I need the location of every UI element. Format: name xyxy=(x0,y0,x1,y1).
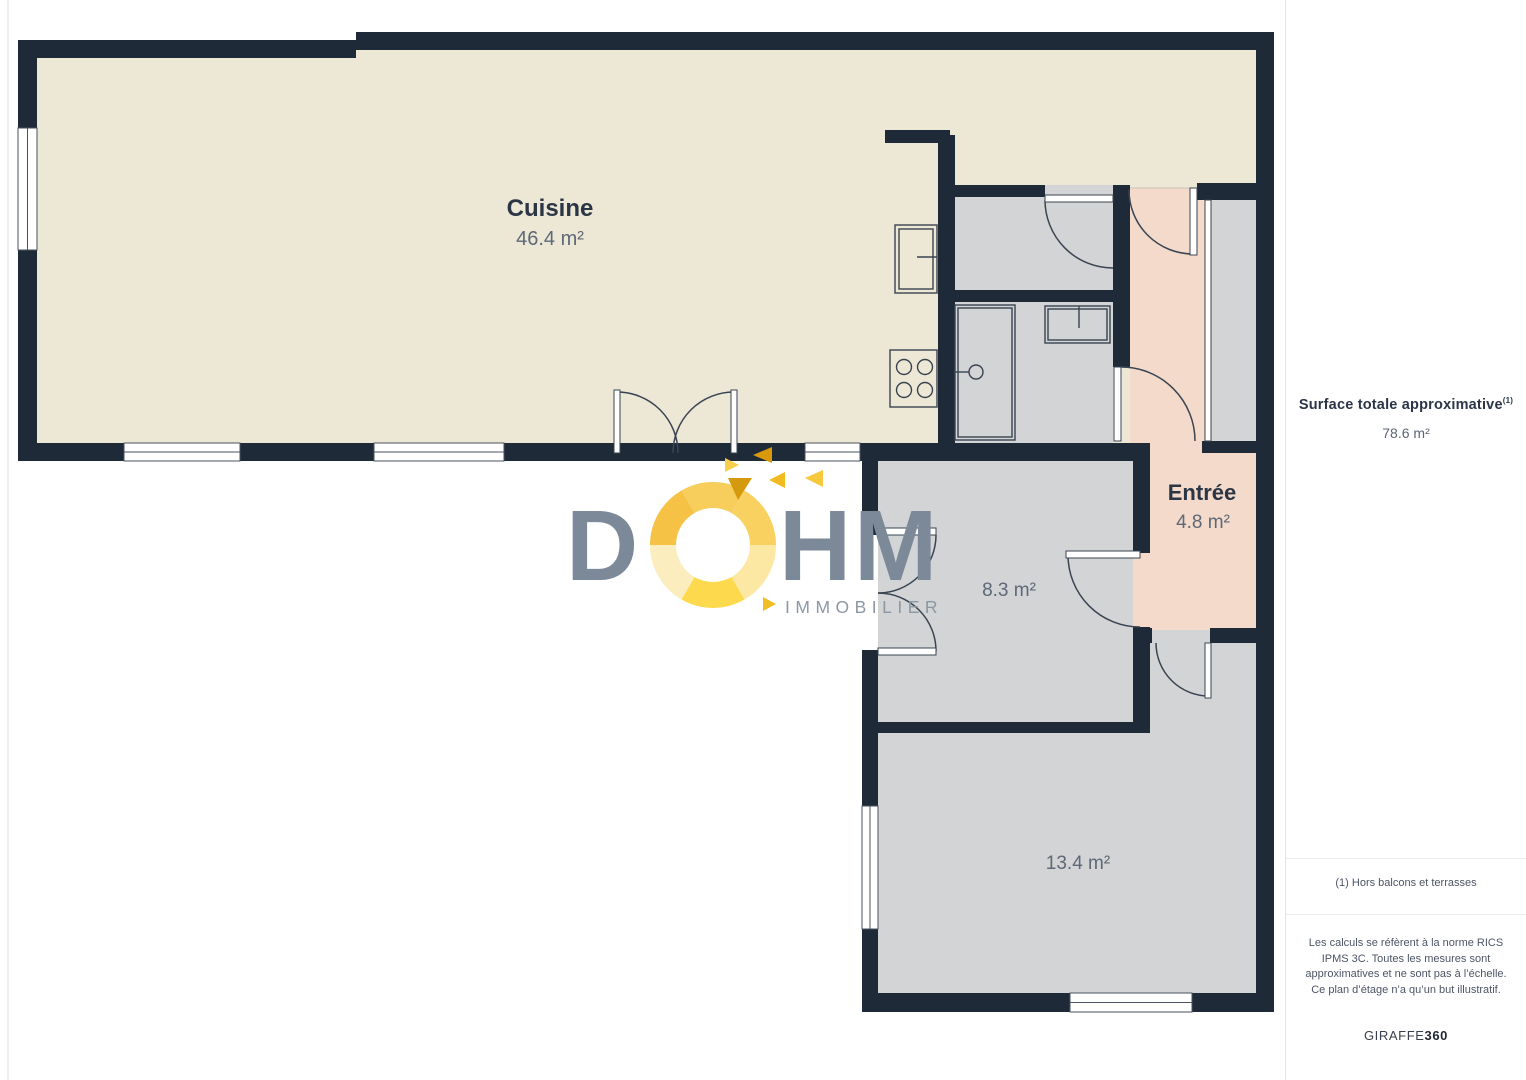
door-leaf xyxy=(1066,551,1140,558)
door-leaf xyxy=(1114,367,1121,441)
door-leaf xyxy=(1045,195,1113,202)
room-area-83: 8.3 m² xyxy=(982,580,1036,601)
sun-ray-icon xyxy=(805,470,823,487)
logo-letter-d: D xyxy=(566,490,638,602)
surface-title: Surface totale approximative(1) xyxy=(1286,396,1526,413)
divider xyxy=(1286,858,1526,859)
wall-top-left xyxy=(18,40,356,58)
giraffe360-brand: GIRAFFE360 xyxy=(1286,1028,1526,1043)
logo-subtitle: IMMOBILIER xyxy=(785,597,943,617)
footnote-marker: (1) xyxy=(1503,396,1513,405)
logo-sub-triangle-icon xyxy=(763,597,776,611)
floor-plan-svg: Cuisine 46.4 m² Entrée 4.8 m² 8.3 m² 13.… xyxy=(0,0,1285,1080)
divider xyxy=(1286,914,1526,915)
room-entree-fill xyxy=(1150,445,1256,630)
door-leaf xyxy=(1205,643,1211,698)
sun-ray-icon xyxy=(769,472,785,488)
room-area-cuisine: 46.4 m² xyxy=(516,228,584,250)
door-leaf xyxy=(878,648,936,655)
wall-entree-bottom xyxy=(1210,628,1256,643)
floor-plan-canvas: Cuisine 46.4 m² Entrée 4.8 m² 8.3 m² 13.… xyxy=(0,0,1285,1080)
wall-kitchen-stub xyxy=(885,130,950,143)
wall-kitchen xyxy=(938,135,955,455)
footnote-text: (1) Hors balcons et terrasses xyxy=(1286,877,1526,889)
door-leaf xyxy=(614,390,620,453)
room-label-entree: Entrée xyxy=(1168,480,1236,505)
room-cuisine-fill xyxy=(37,58,356,443)
logo-sun-ring xyxy=(663,495,763,595)
logo-letter-h: H xyxy=(779,490,851,602)
info-sidebar: Surface totale approximative(1) 78.6 m² … xyxy=(1285,0,1526,1080)
room-closet-fill xyxy=(1210,200,1256,441)
surface-total-value: 78.6 m² xyxy=(1286,425,1526,441)
floorplan-viewer: Cuisine 46.4 m² Entrée 4.8 m² 8.3 m² 13.… xyxy=(0,0,1526,1080)
room-area-134: 13.4 m² xyxy=(1046,853,1110,874)
door-leaf xyxy=(1190,188,1197,255)
wall-top-right xyxy=(356,32,1274,50)
logo-letter-m: M xyxy=(854,490,937,602)
room-bathroom-fill xyxy=(950,185,1113,455)
door-leaf xyxy=(731,390,737,453)
wall-closet-bottom xyxy=(1202,441,1256,453)
wall-right xyxy=(1256,32,1274,1012)
wall-wc-entree xyxy=(1113,185,1130,367)
legal-disclaimer: Les calculs se réfèrent à la norme RICS … xyxy=(1286,936,1526,998)
wall-bottom xyxy=(862,993,1256,1012)
room-label-cuisine: Cuisine xyxy=(507,195,594,222)
wall-divider-83-134 xyxy=(878,722,1135,733)
wall-bath-divider xyxy=(950,290,1130,302)
closet-partition xyxy=(1205,200,1211,441)
room-area-entree: 4.8 m² xyxy=(1176,512,1230,533)
